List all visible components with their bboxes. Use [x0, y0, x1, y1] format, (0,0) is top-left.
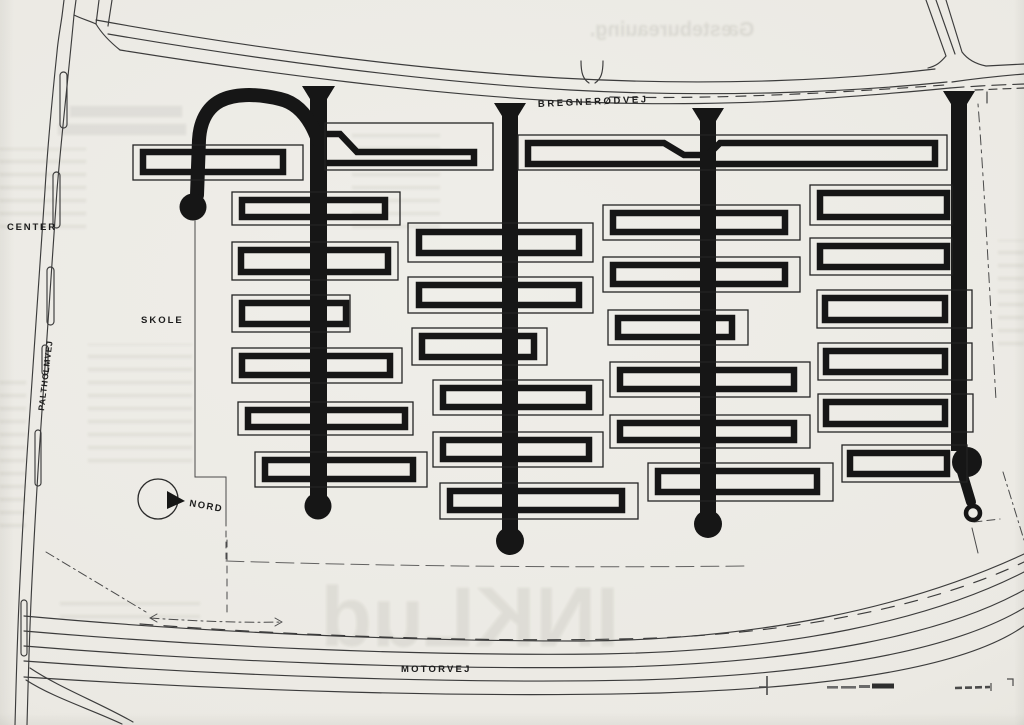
spine-end-circle	[305, 493, 332, 520]
housing-block	[440, 483, 638, 519]
motorway-ramp	[30, 668, 133, 722]
legend-tick-icon	[759, 676, 767, 695]
scanned-site-plan-page: Gæstebureauing. INKLud	[0, 0, 1024, 725]
label-nord: NORD	[188, 498, 223, 515]
spine4-tail	[962, 472, 980, 520]
housing-block	[648, 463, 833, 501]
label-motorvej: MOTORVEJ	[401, 664, 472, 675]
housing-block	[255, 452, 427, 487]
housing-block-building	[825, 298, 945, 320]
housing-block	[608, 310, 748, 345]
road-bregnerodvej	[96, 20, 950, 104]
housing-block-building	[820, 193, 947, 217]
site-plan-map: Gæstebureauing. INKLud	[0, 0, 1024, 725]
label-center: CENTER	[7, 222, 57, 233]
housing-block	[818, 394, 973, 432]
bleedthrough-word-top: Gæstebureauing.	[590, 19, 754, 41]
housing-block-building	[613, 213, 785, 232]
housing-block	[232, 295, 350, 332]
housing-block	[408, 277, 593, 313]
label-bregnerodvej: BREGNERØDVEJ	[538, 94, 649, 110]
access-spine	[494, 103, 526, 555]
housing-block-building	[658, 471, 817, 492]
spine-road	[951, 104, 967, 451]
housing-block-building	[242, 303, 346, 324]
housing-block-building	[826, 351, 945, 372]
spine-end-circle	[496, 527, 524, 555]
legend-marks	[759, 676, 1013, 695]
legend-corner-mark	[1007, 679, 1013, 686]
school-plot-boundary	[195, 221, 226, 520]
blocks-layer	[133, 123, 973, 519]
legend-microprint	[827, 684, 894, 689]
housing-block-building	[450, 491, 622, 510]
housing-block-building	[143, 152, 283, 172]
housing-block	[817, 290, 972, 328]
housing-block	[133, 145, 303, 180]
housing-block	[818, 343, 972, 380]
housing-block-building	[419, 285, 579, 305]
spine-end-circle	[694, 510, 722, 538]
housing-block-building	[419, 232, 579, 253]
housing-block-building	[528, 143, 935, 164]
label-paltholmvej: PALTHOLMVEJ	[36, 340, 55, 412]
housing-block	[810, 238, 952, 275]
housing-block	[842, 445, 967, 482]
housing-block-building	[613, 265, 785, 284]
north-symbol: NORD	[138, 479, 224, 519]
housing-block-building	[850, 453, 947, 474]
housing-block-building	[826, 402, 945, 424]
housing-block	[412, 328, 547, 365]
road-top-left-stubs	[57, 0, 120, 52]
road-top-right-intersection	[926, 0, 1024, 103]
label-skole: SKOLE	[141, 315, 184, 326]
spine-flare	[943, 91, 975, 104]
housing-block-building	[820, 246, 947, 267]
spine-flare	[302, 86, 335, 99]
legend-scale-bar	[955, 687, 990, 688]
spine4-tail-ring	[966, 506, 980, 520]
bleedthrough-word-bottom: INKLud	[321, 570, 620, 664]
housing-block	[810, 185, 952, 225]
housing-block	[408, 223, 593, 262]
housing-block	[518, 135, 947, 170]
access-spine	[943, 91, 982, 477]
hook-end-circle	[180, 194, 207, 221]
housing-block-building	[265, 460, 413, 479]
